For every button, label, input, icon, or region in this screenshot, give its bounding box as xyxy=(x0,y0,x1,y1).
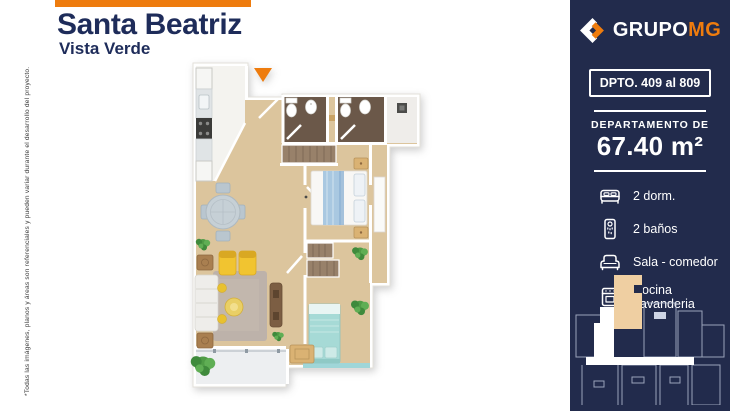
dining-chair xyxy=(216,231,230,241)
side-table xyxy=(197,255,213,270)
dresser xyxy=(290,345,314,363)
door-handle xyxy=(305,196,308,199)
page-title: Santa Beatriz xyxy=(57,8,242,42)
pillow xyxy=(354,174,365,196)
pouf xyxy=(218,315,227,324)
disclaimer-text: *Todas las imágenes, planos y áreas son … xyxy=(24,24,31,396)
toilet xyxy=(286,98,297,103)
sink xyxy=(306,100,317,114)
brand-accent: MG xyxy=(688,19,721,41)
pouf xyxy=(218,284,227,293)
tv-console xyxy=(270,283,282,327)
feature-bedrooms: 2 dorm. xyxy=(598,184,730,208)
feature-bathrooms: 2 baños xyxy=(598,217,730,241)
fridge xyxy=(196,68,212,89)
wall-cabinet xyxy=(329,115,335,121)
pillow xyxy=(325,347,337,358)
dining-chair xyxy=(216,183,230,193)
unit-badge: DPTO. 409 al 809 xyxy=(589,69,711,97)
brand-name: GRUPOMG xyxy=(613,19,721,42)
skyline-detail xyxy=(654,312,666,319)
bathroom-2 xyxy=(338,97,384,142)
divider xyxy=(594,110,706,112)
entrance-marker-icon xyxy=(254,68,272,82)
skyline-base-bar xyxy=(586,357,694,365)
flyer-page: *Todas las imágenes, planos y áreas son … xyxy=(0,0,730,411)
brand-primary: GRUPO xyxy=(613,19,688,41)
skyline-highlight-building xyxy=(614,275,642,329)
side-table xyxy=(197,333,213,348)
sink xyxy=(360,100,371,114)
feature-label: 2 baños xyxy=(633,222,677,236)
area-label: DEPARTAMENTO DE xyxy=(570,119,730,131)
page-subtitle: Vista Verde xyxy=(59,39,150,59)
header-accent-bar xyxy=(55,0,251,7)
bathroom-1 xyxy=(284,97,326,142)
brand-logo: GRUPOMG xyxy=(570,17,730,44)
laundry-area xyxy=(386,97,417,143)
divider xyxy=(594,170,706,172)
floor-plan xyxy=(183,57,423,402)
window-strip xyxy=(303,363,370,368)
shower-icon xyxy=(598,217,622,241)
kitchen-sink xyxy=(199,95,209,109)
bed-icon xyxy=(598,184,622,208)
stove xyxy=(196,118,212,139)
sidebar: GRUPOMG DPTO. 409 al 809 DEPARTAMENTO DE… xyxy=(570,0,730,411)
pillow xyxy=(354,200,365,222)
grupo-mg-logo-icon xyxy=(579,17,606,44)
feature-label: 2 dorm. xyxy=(633,189,675,203)
area-value: 67.40 m² xyxy=(570,131,730,162)
toilet xyxy=(340,98,351,103)
hall-closet xyxy=(374,177,385,232)
building-skyline xyxy=(570,265,730,405)
